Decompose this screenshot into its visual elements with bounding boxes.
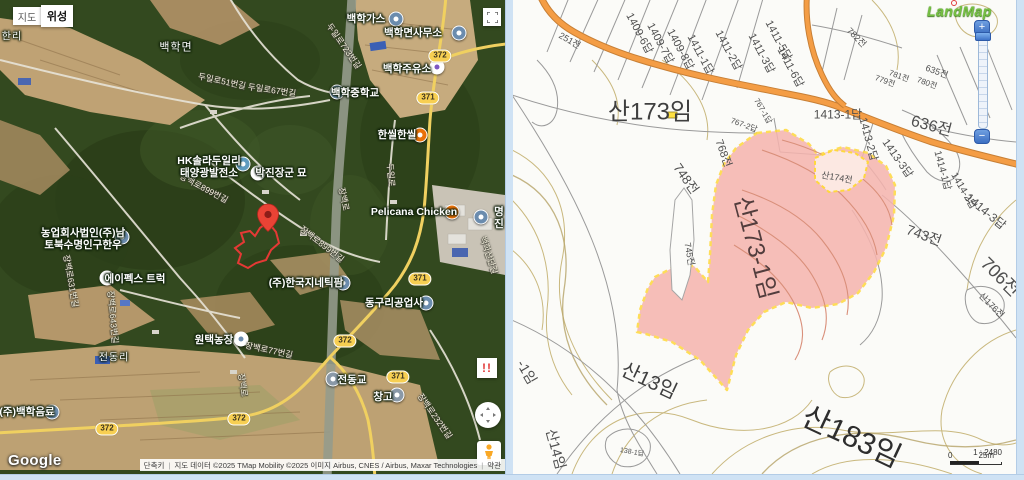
zoom-out-button[interactable]: −	[974, 129, 990, 144]
scale-zero-label: 0	[948, 451, 952, 460]
google-logo[interactable]: Google	[8, 452, 61, 469]
zoom-slider-handle[interactable]	[975, 32, 991, 41]
map-data-credits: 지도 데이터 ©2025 TMap Mobility ©2025 이미지 Air…	[174, 460, 477, 471]
attribution-separator: |	[481, 461, 483, 470]
route-badge-372: 372	[333, 335, 356, 348]
warning-button[interactable]: !!	[477, 358, 497, 378]
cadastral-map-panel[interactable]: 1409-6답1409-7답1409-8답1411-1답1411-2답1411-…	[512, 0, 1016, 474]
route-badge-372: 372	[227, 413, 250, 426]
shortcuts-link[interactable]: 단축키	[144, 460, 165, 471]
horizontal-scrollbar[interactable]	[0, 474, 1024, 480]
parcel-label: 251전	[557, 29, 584, 52]
route-badge-372: 372	[428, 50, 451, 63]
route-badge-372: 372	[95, 423, 118, 436]
parcel-label-san13: 산13임	[617, 353, 683, 404]
route-badge-371: 371	[416, 92, 439, 105]
landmap-logo-accent	[951, 0, 957, 6]
parcel-label-san173: 산173임	[608, 92, 692, 127]
parcel-label-san183: 산183임	[796, 392, 910, 474]
satellite-type-button[interactable]: 위성	[41, 5, 73, 27]
scale-ratio: 1 : 2480	[950, 448, 1002, 457]
parcel-label: 782전	[844, 24, 870, 50]
fullscreen-icon	[487, 12, 498, 23]
satellite-map-panel[interactable]: 두일로51번길두일로67번길두일로723번길두일로장백로899번길장백로899번…	[0, 0, 505, 474]
parcel-label: 1414-3답	[962, 189, 1010, 233]
route-badge-371: 371	[408, 273, 431, 286]
zoom-slider-track[interactable]	[978, 37, 988, 129]
parcel-label-partial: -1임	[512, 356, 542, 388]
vertical-scrollbar[interactable]	[1016, 0, 1024, 474]
route-badge-371: 371	[386, 371, 409, 384]
parcel-label-san173-1-highlight: 산173-1임	[727, 191, 788, 302]
parcel-label: 768전	[712, 137, 737, 169]
parcel-label-san174: 산174전	[820, 168, 853, 186]
parcel-label: 1413-2답	[856, 115, 883, 162]
terms-link[interactable]: 약관	[487, 460, 501, 471]
parcel-label: 1413-3답	[879, 135, 918, 181]
map-type-button[interactable]: 지도	[13, 7, 41, 25]
zoom-control: + −	[974, 20, 990, 144]
attribution-bar: 단축키 | 지도 데이터 ©2025 TMap Mobility ©2025 이…	[140, 459, 505, 471]
parcel-label: 767-2답	[729, 115, 759, 135]
attribution-separator: |	[168, 461, 170, 470]
map-scale: 1 : 2480 0 25m	[950, 448, 1002, 466]
pan-arrows-icon	[479, 406, 497, 424]
parcel-label: 636전	[909, 107, 955, 141]
scale-bar: 0 25m	[950, 458, 1002, 466]
parcel-label: 743전	[904, 219, 945, 250]
parcel-label: 745전	[682, 241, 699, 266]
parcel-label: 767-1답	[751, 96, 774, 126]
parcel-label: 138-1답	[619, 445, 645, 459]
scale-distance-label: 25m	[978, 451, 994, 460]
landmap-logo: LandMap	[927, 3, 992, 19]
parcel-label-san14: 산14임	[541, 426, 571, 471]
fullscreen-button[interactable]	[483, 8, 501, 26]
pan-control[interactable]	[475, 402, 501, 428]
dual-map-viewer: 두일로51번길두일로67번길두일로723번길두일로장백로899번길장백로899번…	[0, 0, 1024, 480]
parcel-label: 748전	[670, 159, 705, 197]
panel-divider	[505, 0, 513, 474]
